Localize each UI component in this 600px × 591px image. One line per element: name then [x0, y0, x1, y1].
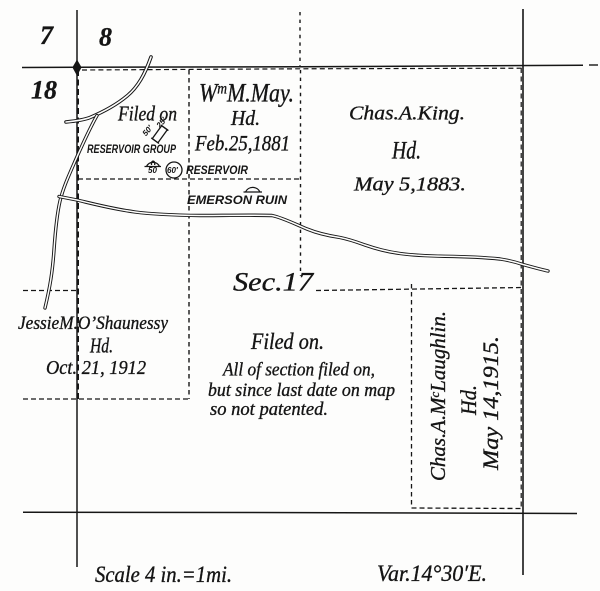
svg-text:but since last date on map: but since last date on map: [208, 380, 395, 401]
svg-text:18: 18: [31, 76, 57, 105]
svg-text:60′: 60′: [167, 166, 179, 175]
svg-text:EMERSON RUIN: EMERSON RUIN: [187, 193, 287, 207]
svg-text:Hd.: Hd.: [230, 106, 260, 130]
svg-text:8: 8: [99, 23, 112, 52]
svg-text:All of section filed on,: All of section filed on,: [221, 360, 375, 381]
svg-text:May 14,1915.: May 14,1915.: [478, 336, 503, 471]
svg-text:Hd.: Hd.: [89, 334, 113, 358]
svg-text:Filed on.: Filed on.: [250, 329, 324, 354]
svg-text:WmM.May.: WmM.May.: [199, 79, 294, 108]
svg-text:JessieM.O’Shaunessy: JessieM.O’Shaunessy: [18, 313, 169, 334]
svg-text:Scale 4 in.=1mi.: Scale 4 in.=1mi.: [95, 562, 232, 587]
svg-text:Var.14°30′E.: Var.14°30′E.: [377, 561, 487, 586]
svg-text:7: 7: [40, 21, 54, 50]
svg-text:RESERVOIR GROUP: RESERVOIR GROUP: [87, 144, 176, 156]
svg-text:RESERVOIR: RESERVOIR: [186, 165, 249, 177]
svg-text:50: 50: [148, 166, 157, 175]
svg-text:Oct. 21, 1912: Oct. 21, 1912: [46, 358, 146, 379]
svg-text:May 5,1883.: May 5,1883.: [353, 174, 466, 196]
svg-text:Hd.: Hd.: [391, 138, 421, 165]
svg-text:Feb.25,1881: Feb.25,1881: [194, 131, 290, 156]
svg-text:so not patented.: so not patented.: [210, 399, 328, 420]
svg-text:Chas.A.King.: Chas.A.King.: [349, 103, 465, 125]
svg-text:Sec.17: Sec.17: [233, 268, 314, 297]
